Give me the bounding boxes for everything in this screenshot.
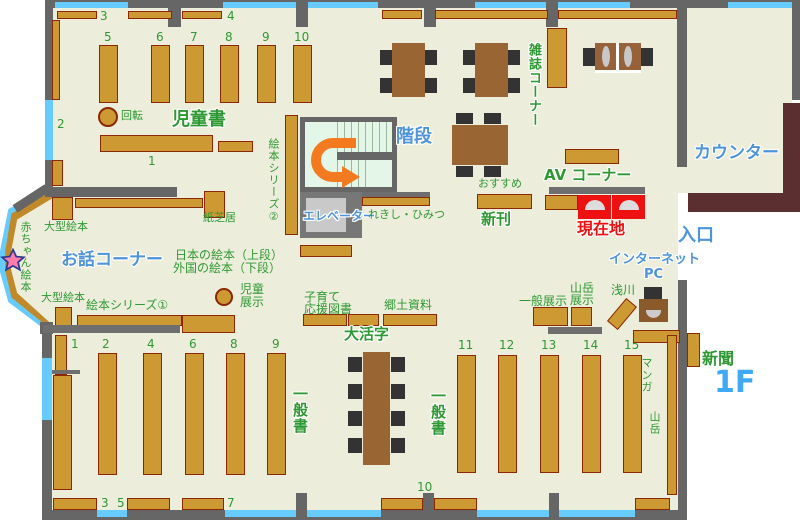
shelf	[57, 11, 97, 19]
shelf	[267, 353, 286, 475]
shelf-number: 4	[147, 338, 155, 350]
seat	[602, 46, 610, 67]
window-top-1	[55, 2, 128, 8]
newspaper-shelf	[687, 333, 700, 367]
label-internet-pc: インターネット	[609, 253, 700, 266]
shelf-number: 3	[101, 497, 109, 509]
shelf-number: 2	[102, 338, 110, 350]
label-av-corner: AV コーナー	[544, 168, 631, 183]
label-children-display: 児童	[240, 283, 264, 295]
shelf	[457, 355, 476, 473]
shelf-number: 11	[458, 339, 473, 351]
counter-room-floor	[687, 8, 792, 193]
chair	[508, 50, 520, 65]
chair	[463, 50, 475, 65]
chair	[391, 357, 405, 372]
label-large-picture-books: 大型絵本	[44, 221, 88, 232]
passage-floor	[677, 167, 687, 193]
rotating-rack	[98, 107, 118, 127]
shelf-number: 2	[57, 118, 65, 130]
label-baby-picture-books: 赤ちゃん絵本	[20, 221, 31, 296]
shelf-number: 14	[583, 339, 598, 351]
rotating-rack-label: 回転	[121, 110, 143, 121]
shelf-number: 5	[104, 31, 112, 43]
shelf	[182, 315, 235, 333]
window-left-upper	[45, 100, 53, 160]
children-display-stand	[215, 288, 233, 306]
label-elevator: エレベーター	[303, 210, 375, 222]
window-top-4	[475, 2, 547, 8]
study-table	[452, 125, 508, 165]
label-local-materials: 郷土資料	[384, 299, 432, 311]
label-counter: カウンター	[694, 145, 779, 162]
shelf-number: 1	[71, 338, 79, 350]
shelf-number: 4	[227, 10, 235, 22]
shelf	[285, 115, 298, 235]
shelf-number: 8	[225, 31, 233, 43]
shelf	[55, 307, 72, 327]
chair	[484, 113, 501, 124]
sofa-base	[595, 70, 641, 73]
window-bottom-2	[225, 510, 296, 517]
shelf-number: 1	[148, 155, 156, 167]
shelf	[226, 353, 245, 475]
shelf-number: 12	[499, 339, 514, 351]
low-wall	[548, 327, 602, 334]
shelf	[185, 353, 204, 475]
shelf	[667, 335, 677, 495]
shelf	[182, 498, 224, 510]
shelf	[185, 45, 204, 103]
window-bottom-4	[477, 510, 549, 517]
wall-right-upper	[792, 0, 800, 100]
shelf-number: 7	[190, 31, 198, 43]
pc-desk	[639, 299, 668, 322]
display-shelf	[533, 307, 568, 326]
chair	[391, 411, 405, 426]
counter-desk	[688, 193, 800, 212]
label-picture-book-series-1: 絵本シリーズ①	[86, 299, 168, 311]
label-general-display: 一般展示	[519, 295, 567, 307]
label-history-secrets: れきし・ひみつ	[368, 209, 445, 220]
shelf	[498, 355, 517, 473]
desk-chair	[646, 310, 661, 318]
label-mountain-books: 山岳	[649, 411, 660, 441]
label-asakawa: 浅川	[611, 284, 635, 296]
chair	[348, 357, 362, 372]
shelf	[151, 45, 170, 103]
current-location-marker	[612, 195, 645, 219]
pc-monitor	[644, 287, 662, 299]
av-shelf	[565, 149, 619, 164]
reading-table	[475, 43, 508, 97]
window-top-6	[728, 2, 795, 8]
shelf	[582, 355, 601, 473]
label-internet-pc-2: PC	[644, 268, 663, 281]
stairs-direction-arrow-icon	[306, 134, 366, 188]
label-large-picture-books-2: 大型絵本	[41, 292, 85, 303]
label-entrance: 入口	[678, 227, 714, 245]
chair	[380, 78, 392, 93]
sofa	[595, 43, 641, 70]
pillar	[423, 493, 434, 518]
shelf	[143, 353, 162, 475]
label-japanese-picture-books: 日本の絵本（上段）	[175, 249, 283, 261]
shelf	[381, 498, 423, 510]
shelf	[220, 45, 239, 103]
shelf	[382, 10, 422, 19]
chair	[456, 113, 473, 124]
wall-right-lower	[678, 280, 687, 517]
shelf	[53, 375, 72, 490]
shelf	[52, 20, 60, 100]
shelf	[100, 135, 213, 152]
chair	[508, 78, 520, 93]
shelf	[75, 198, 203, 208]
shelf-number: 8	[230, 338, 238, 350]
window-top-2	[223, 2, 297, 8]
low-wall	[52, 370, 80, 374]
shelf-number: 6	[189, 338, 197, 350]
shelf-number: 5	[117, 497, 125, 509]
label-kamishibai: 紙芝居	[203, 212, 236, 223]
low-wall	[43, 325, 180, 333]
shelf	[558, 10, 677, 19]
label-new-arrivals: 新刊	[481, 212, 511, 227]
label-foreign-picture-books: 外国の絵本（下段）	[173, 262, 281, 274]
label-story-corner: お話コーナー	[61, 252, 163, 269]
shelf-number: 6	[156, 31, 164, 43]
seat	[624, 46, 632, 67]
shelf	[434, 498, 477, 510]
display-shelf	[571, 307, 592, 326]
wall-counter-partition	[677, 0, 687, 167]
label-picture-book-series-2: 絵本シリーズ②	[268, 138, 279, 230]
shelf	[98, 353, 117, 475]
chair	[463, 78, 475, 93]
chair	[425, 50, 437, 65]
shelf	[300, 245, 352, 257]
shelf-number: 9	[272, 338, 280, 350]
chair	[456, 166, 473, 177]
shelf	[257, 45, 276, 103]
shelf	[128, 11, 172, 19]
shelf-number: 9	[262, 31, 270, 43]
label-recommended: おすすめ	[478, 178, 522, 189]
gate-arch	[619, 200, 639, 210]
window-top-3	[307, 2, 378, 8]
chair	[348, 411, 362, 426]
label-general-books-mid: 一般書	[430, 388, 445, 448]
label-manga: マンガ	[641, 357, 652, 402]
chair	[391, 384, 405, 399]
label-current-location: 現在地	[577, 221, 625, 237]
window-left-lower	[42, 358, 52, 420]
magazine-shelf	[547, 28, 567, 88]
shelf	[362, 197, 430, 206]
sofa-arm	[583, 48, 595, 66]
shelf-number: 7	[227, 497, 235, 509]
label-mountain-display-2: 展示	[570, 294, 594, 306]
floor-label: 1F	[714, 368, 755, 398]
shelf	[53, 498, 97, 510]
pillar	[296, 0, 308, 27]
reading-table	[392, 43, 425, 97]
shelf	[303, 314, 347, 326]
chair	[380, 50, 392, 65]
shelf	[545, 195, 578, 210]
area-label-childrens-books: 児童書	[172, 111, 226, 129]
wall-stub-story	[45, 187, 177, 197]
window-bottom-1	[97, 510, 127, 517]
window-bottom-5	[558, 510, 635, 517]
pillar	[549, 493, 559, 518]
chair	[348, 384, 362, 399]
shelf	[55, 335, 67, 375]
gate-arch	[585, 200, 605, 210]
sofa-arm	[641, 48, 653, 66]
shelf	[182, 11, 222, 19]
shelf	[99, 45, 118, 103]
label-magazine-corner: 雑誌コーナー	[527, 43, 540, 131]
window-top-5	[558, 2, 630, 8]
label-children-display-2: 展示	[240, 296, 264, 308]
label-large-print: 大活字	[344, 327, 389, 342]
shelf	[383, 314, 437, 326]
chair	[391, 438, 405, 453]
shelf-number: 10	[417, 481, 432, 493]
shelf-number: 10	[294, 31, 309, 43]
chair	[425, 78, 437, 93]
shelf	[293, 45, 312, 103]
label-general-books-left: 一般書	[292, 386, 307, 446]
label-stairs: 階段	[396, 128, 432, 146]
shelf	[540, 355, 559, 473]
shelf-number: 13	[541, 339, 556, 351]
shelf	[218, 141, 253, 152]
shelf	[635, 498, 670, 510]
chair	[348, 438, 362, 453]
sofa-divider	[616, 43, 619, 70]
new-arrivals-shelf	[477, 194, 532, 209]
pillar	[296, 493, 307, 518]
window-bottom-3	[307, 510, 381, 517]
chair	[484, 166, 501, 177]
long-study-table	[363, 352, 390, 465]
shelf-number: 3	[100, 10, 108, 22]
shelf	[127, 498, 170, 510]
current-location-marker	[578, 195, 611, 219]
gate-back-panel	[549, 187, 645, 194]
shelf	[52, 197, 73, 220]
shelf	[52, 160, 63, 186]
shelf	[435, 10, 548, 19]
library-floor-map: 3 4 2 5 6 7 8 9 10 回転 児童書 1 大型絵本 紙芝居 絵本シ…	[0, 0, 800, 521]
